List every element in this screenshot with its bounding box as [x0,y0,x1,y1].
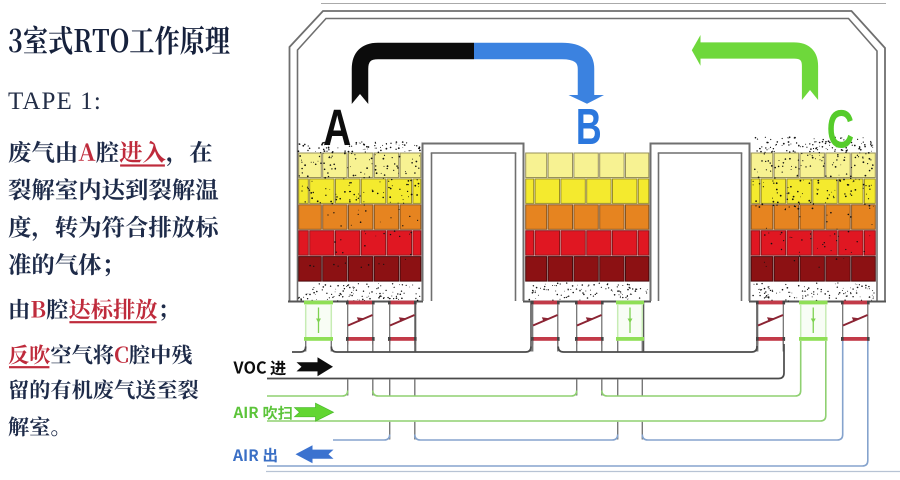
svg-text:B: B [576,99,602,156]
svg-text:TAPE 1:: TAPE 1: [8,88,102,115]
svg-text:A: A [323,99,351,156]
svg-text:C: C [827,99,854,159]
